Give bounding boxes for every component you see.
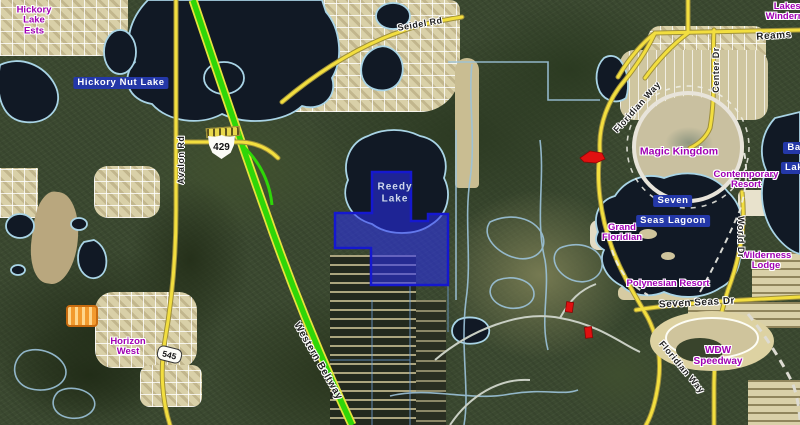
- parcel-lines-layer: [330, 285, 448, 425]
- label-polynesian-resort: Polynesian Resort: [627, 279, 710, 289]
- pond: [6, 214, 34, 238]
- label-line: Resort: [714, 180, 779, 190]
- wetland: [15, 350, 66, 390]
- orange-landmark-icon: [66, 305, 98, 327]
- golf-contour: [487, 217, 544, 259]
- label-line: Ests: [17, 26, 52, 36]
- label-line: Hickory Nut Lake: [73, 77, 168, 89]
- label-line: Bay: [783, 142, 800, 154]
- label-bay-lake: Bay Lake: [781, 136, 800, 176]
- wetland: [53, 388, 95, 418]
- label-magic-kingdom: Magic Kingdom: [640, 146, 718, 157]
- red-marker: [565, 302, 573, 313]
- label-line: Windermere: [766, 12, 800, 22]
- lake: [0, 61, 58, 122]
- island: [661, 252, 675, 260]
- label-line: Lake: [377, 193, 412, 205]
- pond: [71, 218, 87, 230]
- label-center-dr: Center Dr: [711, 47, 721, 93]
- label-world-dr: World Dr: [736, 216, 746, 258]
- label-wdw-speedway: WDW Speedway: [694, 346, 743, 368]
- pond: [361, 46, 403, 90]
- label-line: Speedway: [694, 357, 743, 368]
- pond: [11, 265, 25, 275]
- label-line: Magic Kingdom: [640, 146, 718, 157]
- golf-contour: [490, 278, 534, 308]
- pond: [452, 317, 489, 343]
- label-line: Floridian: [602, 233, 642, 243]
- label-line: Seas Lagoon: [636, 215, 710, 227]
- red-marker: [584, 327, 592, 339]
- label-horizon-west: Horizon West: [110, 337, 145, 358]
- label-line: West: [110, 347, 145, 357]
- pond: [78, 240, 106, 278]
- label-hickory-lake-ests: Hickory Lake Ests: [17, 6, 52, 37]
- streams-layer: [15, 62, 603, 425]
- label-line: Lodge: [741, 261, 792, 271]
- minor-road: [560, 284, 596, 318]
- label-line: Seven: [653, 195, 692, 207]
- label-seven-seas-lagoon: Seven Seas Lagoon: [636, 189, 710, 229]
- label-line: Polynesian Resort: [627, 279, 710, 289]
- stream: [464, 64, 472, 425]
- map-canvas[interactable]: 429 545 Hickory Lake Ests Horizon West M…: [0, 0, 800, 425]
- route-number: 545: [161, 348, 177, 361]
- label-lakes-of-windermere: Lakes of Windermere: [766, 2, 800, 23]
- label-line: Lake: [781, 162, 800, 174]
- golf-contour: [554, 245, 602, 282]
- label-line: Reedy: [377, 182, 412, 194]
- hickory-nut-lake-water: [127, 0, 339, 121]
- minor-road: [450, 380, 530, 425]
- label-contemporary-resort: Contemporary Resort: [714, 170, 779, 191]
- label-reedy-lake: Reedy Lake: [377, 182, 412, 205]
- label-avalon-rd: Avalon Rd: [176, 136, 186, 185]
- label-hickory-nut-lake: Hickory Nut Lake: [73, 71, 168, 91]
- label-wilderness-lodge: Wilderness Lodge: [741, 251, 792, 272]
- route-number: 429: [213, 142, 230, 153]
- lake: [104, 30, 136, 74]
- label-line: Lake: [17, 16, 52, 26]
